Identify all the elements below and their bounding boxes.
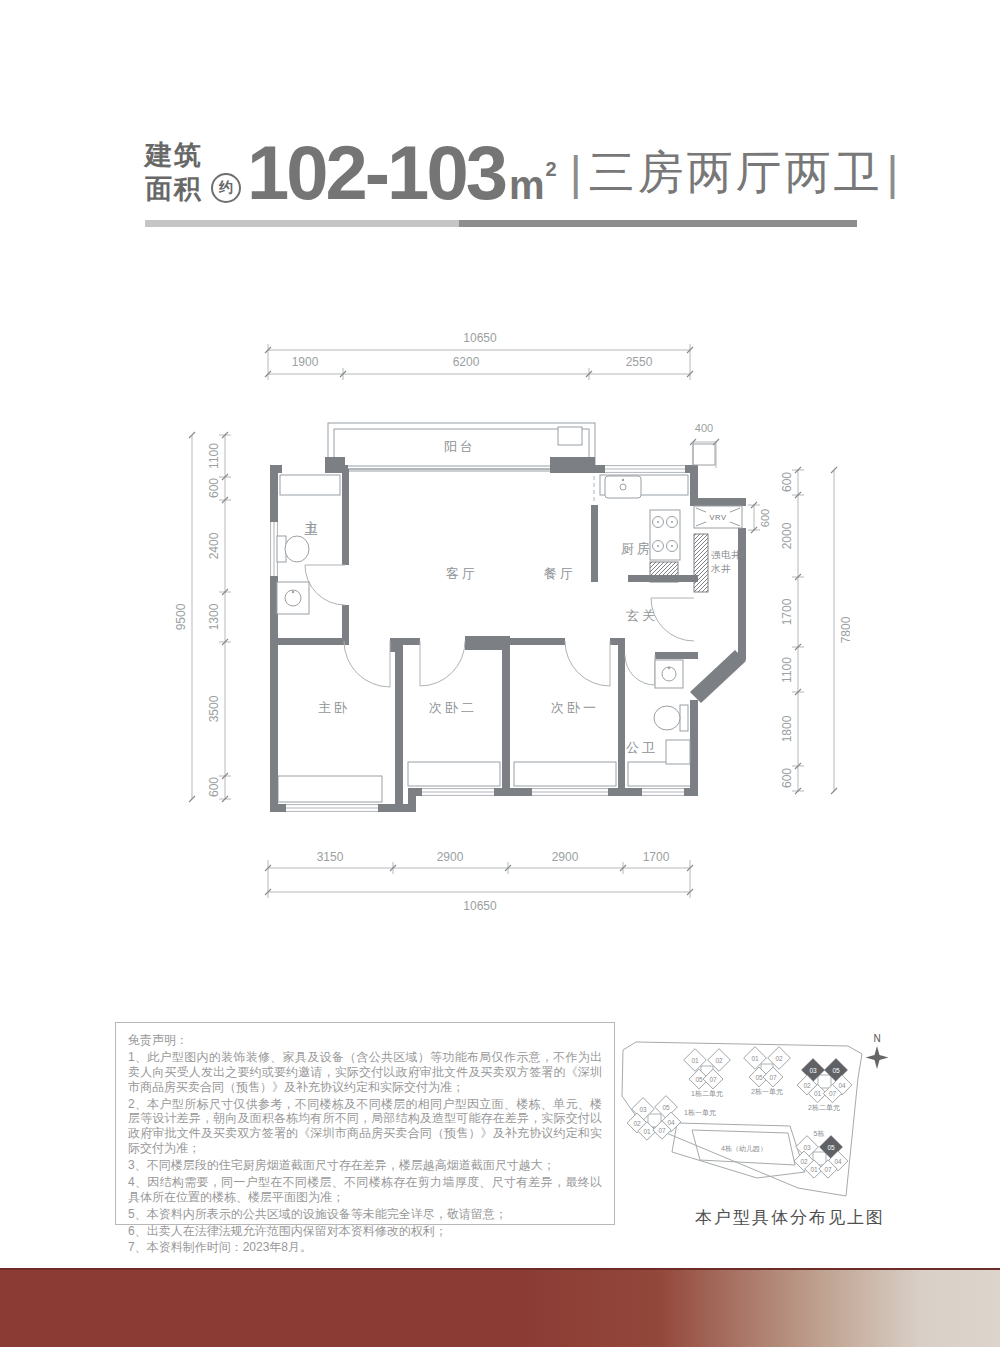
area-exponent: 2 bbox=[546, 158, 557, 181]
room-label-kitchen: 厨房 bbox=[621, 541, 653, 556]
unit-number: 05 bbox=[695, 1076, 703, 1083]
title-divider bbox=[145, 220, 857, 227]
shaft-label-line1: 强电井/ bbox=[711, 549, 744, 560]
unit-number: 04 bbox=[834, 1158, 842, 1165]
cluster-2-unit-2: 03 05 02 04 01 07 2栋二单元 bbox=[797, 1059, 852, 1112]
sink-fixture-public bbox=[655, 660, 683, 688]
cluster-label: 1栋二单元 bbox=[691, 1090, 723, 1098]
stove-fixture bbox=[650, 510, 680, 560]
room-label-bed1: 次卧一 bbox=[551, 700, 599, 715]
divider-dark-segment bbox=[459, 220, 857, 227]
disclaimer-item: 4、因结构需要，同一户型在不同楼层、不同楼栋存在剪力墙厚度、尺寸有差异，最终以具… bbox=[128, 1175, 602, 1205]
dim-offset-600-vrv: 600 bbox=[748, 502, 771, 533]
cluster-label: 2栋二单元 bbox=[808, 1104, 840, 1112]
north-label: N bbox=[873, 1033, 880, 1044]
unit-number: 07 bbox=[769, 1074, 777, 1081]
unit-number: 01 bbox=[751, 1055, 759, 1062]
unit-number: 01 bbox=[814, 1090, 822, 1097]
sink-fixture-master bbox=[277, 582, 309, 614]
dim-right-6: 600 bbox=[780, 768, 794, 788]
cluster-label: 1栋一单元 bbox=[684, 1109, 716, 1117]
spec-bar-left: | bbox=[570, 146, 585, 200]
area-value-row: 102-103 m 2 bbox=[247, 139, 556, 207]
unit-number-highlighted: 05 bbox=[827, 1144, 835, 1151]
toilet-fixture-public bbox=[654, 705, 688, 731]
dim-right-offset: 400 bbox=[695, 422, 713, 434]
dim-bottom-total: 10650 bbox=[463, 899, 497, 913]
unit-number: 02 bbox=[803, 1082, 811, 1089]
dim-left-total: 9500 bbox=[174, 603, 188, 630]
unit-number: 03 bbox=[639, 1106, 647, 1113]
unit-number: 07 bbox=[829, 1090, 837, 1097]
dim-left-4: 1300 bbox=[207, 603, 221, 630]
dim-left-1: 1100 bbox=[207, 443, 221, 469]
room-label-master-bath: 主卫 bbox=[304, 510, 319, 535]
dim-right-1: 600 bbox=[780, 472, 794, 492]
dim-vrv-offset: 600 bbox=[759, 509, 771, 527]
unit-number-highlighted: 03 bbox=[809, 1067, 817, 1074]
dim-left-2: 600 bbox=[207, 478, 221, 498]
toilet-fixture-master bbox=[277, 536, 309, 562]
room-label-foyer: 玄关 bbox=[626, 608, 658, 623]
unit-number-highlighted: 05 bbox=[832, 1067, 840, 1074]
floorplan-brochure-page: 建筑 面积 约 102-103 m 2 | 三房两厅两卫 | bbox=[0, 0, 1000, 1347]
site-plan: 4栋（幼儿园） 01 02 05 07 1栋二单元 01 02 05 07 bbox=[618, 1030, 968, 1205]
cluster-2-unit-1: 01 02 05 07 2栋一单元 bbox=[744, 1047, 791, 1096]
room-label-dining: 餐厅 bbox=[544, 566, 576, 581]
vrv-label: VRV bbox=[710, 513, 727, 522]
dim-chain-top: 10650 1900 6200 2550 bbox=[265, 331, 693, 380]
kitchen-sink-fixture bbox=[605, 476, 641, 498]
dim-right-3: 1700 bbox=[780, 598, 794, 625]
unit-number: 07 bbox=[658, 1127, 666, 1134]
area-label-line1: 建筑 bbox=[145, 139, 203, 173]
unit-number: 05 bbox=[662, 1104, 670, 1111]
disclaimer-box: 免责声明： 1、此户型图内的装饰装修、家具及设备（含公共区域）等功能布局仅作示意… bbox=[115, 1022, 615, 1225]
area-unit: m bbox=[509, 165, 545, 205]
layout-spec: | 三房两厅两卫 | bbox=[566, 142, 906, 204]
dim-bottom-4: 1700 bbox=[643, 850, 670, 864]
cluster-1-unit-2: 01 02 05 07 1栋二单元 bbox=[684, 1049, 731, 1098]
room-label-living: 客厅 bbox=[446, 566, 478, 581]
floor-plan: 10650 1900 6200 2550 3150 2900 2900 1700… bbox=[150, 320, 850, 920]
building-area-label: 建筑 面积 bbox=[145, 139, 203, 207]
dim-bottom-3: 2900 bbox=[552, 850, 579, 864]
disclaimer-item: 3、不同楼层段的住宅厨房烟道截面尺寸存在差异，楼层越高烟道截面尺寸越大； bbox=[128, 1158, 602, 1173]
room-label-public-bath: 公卫 bbox=[626, 740, 658, 755]
divider-light-segment bbox=[145, 220, 459, 227]
room-labels: 阳台 主卫 客厅 餐厅 厨房 玄关 强电井/ 水井 主卧 次卧二 次卧一 公卫 bbox=[304, 439, 745, 755]
area-value: 102-103 bbox=[247, 139, 505, 207]
dim-top-2: 6200 bbox=[453, 355, 480, 369]
dim-right-2: 2000 bbox=[780, 522, 794, 549]
unit-number: 01 bbox=[691, 1057, 699, 1064]
dim-left-3: 2400 bbox=[207, 532, 221, 559]
dim-left-6: 600 bbox=[207, 777, 221, 797]
unit-number: 01 bbox=[810, 1166, 818, 1173]
washer-fixture bbox=[666, 740, 690, 764]
disclaimer-item: 2、本户型所标尺寸仅供参考，不同楼栋及不同楼层的相同户型因立面、楼栋、单元、楼层… bbox=[128, 1097, 602, 1157]
building-4: 4栋（幼儿园） bbox=[692, 1130, 795, 1165]
unit-number: 02 bbox=[633, 1120, 641, 1127]
unit-number: 07 bbox=[824, 1166, 832, 1173]
unit-number: 02 bbox=[800, 1158, 808, 1165]
dim-top-total: 10650 bbox=[463, 331, 497, 345]
layout-spec-text: 三房两厅两卫 bbox=[589, 142, 883, 204]
cluster-5: 5栋 03 05 02 04 01 07 bbox=[794, 1130, 848, 1178]
kitchen-flue-duct bbox=[650, 562, 678, 582]
disclaimer-item: 1、此户型图内的装饰装修、家具及设备（含公共区域）等功能布局仅作示意，不作为出卖… bbox=[128, 1050, 602, 1095]
unit-number: 04 bbox=[667, 1119, 675, 1126]
cluster-1-unit-1: 03 05 02 04 01 07 1栋一单元 bbox=[627, 1096, 716, 1141]
cluster-label: 5栋 bbox=[814, 1130, 825, 1138]
spec-bar-right: | bbox=[887, 146, 902, 200]
dim-chain-right: 600 2000 1700 1100 1800 600 7800 bbox=[780, 467, 850, 794]
dim-top-3: 2550 bbox=[626, 355, 653, 369]
dim-chain-bottom: 3150 2900 2900 1700 10650 bbox=[265, 850, 693, 913]
site-plan-caption: 本户型具体分布见上图 bbox=[640, 1206, 940, 1229]
room-label-balcony: 阳台 bbox=[444, 439, 476, 454]
unit-number: 01 bbox=[643, 1128, 651, 1135]
dim-right-total: 7800 bbox=[839, 616, 850, 643]
unit-number: 04 bbox=[838, 1082, 846, 1089]
approx-text: 约 bbox=[219, 179, 233, 197]
area-label-line2: 面积 bbox=[145, 173, 203, 207]
unit-number: 07 bbox=[709, 1076, 717, 1083]
room-label-bed2: 次卧二 bbox=[429, 700, 477, 715]
room-label-master-bed: 主卧 bbox=[318, 700, 350, 715]
page-title: 建筑 面积 约 102-103 m 2 | 三房两厅两卫 | bbox=[145, 126, 906, 220]
utility-shaft bbox=[694, 534, 708, 592]
dim-top-1: 1900 bbox=[292, 355, 319, 369]
dim-chain-left: 1100 600 2400 1300 3500 600 9500 bbox=[174, 432, 231, 802]
unit-number: 02 bbox=[775, 1055, 783, 1062]
unit-number: 03 bbox=[803, 1144, 811, 1151]
unit-number: 05 bbox=[755, 1074, 763, 1081]
disclaimer-item: 5、本资料内所表示的公共区域的设施设备等未能完全详尽，敬请留意； bbox=[128, 1207, 602, 1222]
dim-bottom-1: 3150 bbox=[317, 850, 344, 864]
unit-number: 02 bbox=[715, 1057, 723, 1064]
dim-right-4: 1100 bbox=[780, 657, 794, 683]
disclaimer-item: 6、出卖人在法律法规允许范围内保留对本资料修改的权利； bbox=[128, 1224, 602, 1239]
disclaimer-title: 免责声明： bbox=[128, 1033, 602, 1048]
dim-left-5: 3500 bbox=[207, 695, 221, 722]
dim-right-5: 1800 bbox=[780, 715, 794, 742]
cluster-label: 2栋一单元 bbox=[751, 1088, 783, 1096]
vrv-unit: VRV bbox=[694, 506, 742, 528]
approx-badge: 约 bbox=[211, 173, 241, 203]
dim-bottom-2: 2900 bbox=[437, 850, 464, 864]
north-compass-icon: N bbox=[866, 1033, 889, 1069]
disclaimer-item: 7、本资料制作时间：2023年8月。 bbox=[128, 1240, 602, 1255]
shaft-label-line2: 水井 bbox=[710, 563, 731, 574]
building-4-label: 4栋（幼儿园） bbox=[721, 1145, 767, 1153]
footer-band bbox=[0, 1268, 1000, 1347]
